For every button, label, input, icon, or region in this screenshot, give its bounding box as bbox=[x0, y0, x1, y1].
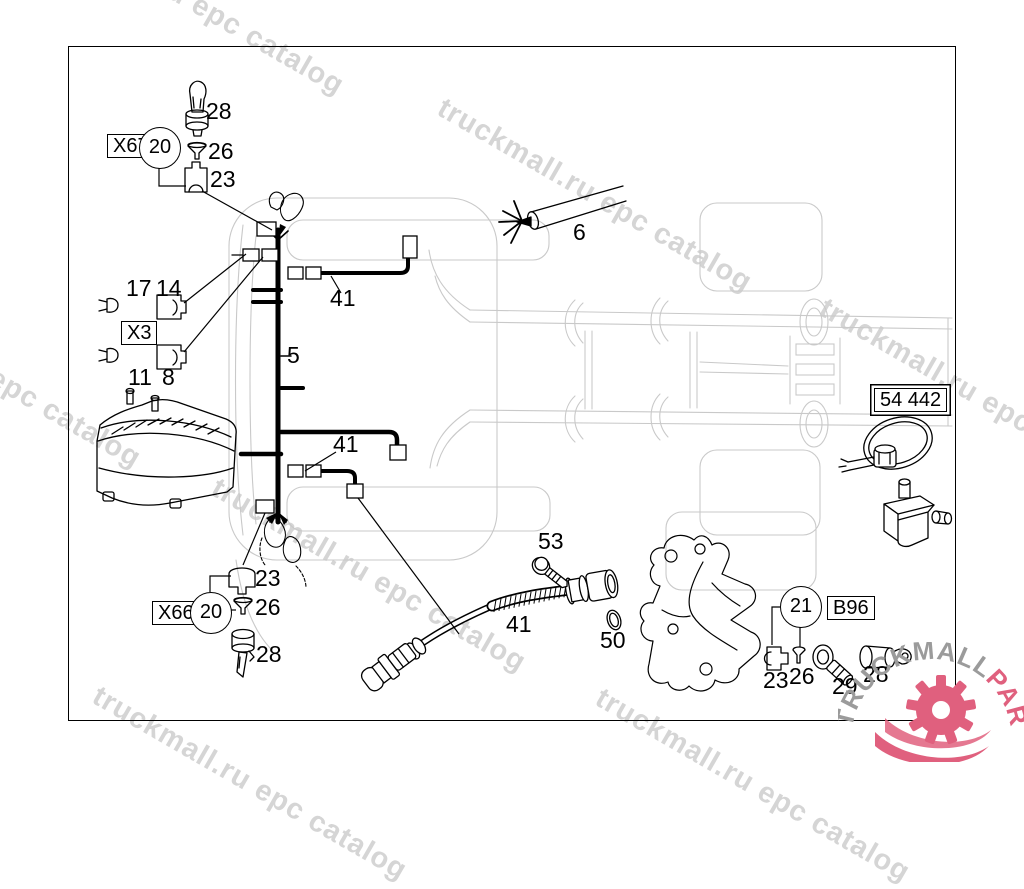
callout-23-x66[interactable]: 23 bbox=[255, 567, 281, 590]
callout-5-harness[interactable]: 5 bbox=[287, 344, 300, 367]
callout-28-x66[interactable]: 28 bbox=[256, 643, 282, 666]
label-box-b96[interactable]: B96 bbox=[827, 596, 875, 620]
label-circle-20-top[interactable]: 20 bbox=[139, 127, 181, 169]
callout-17[interactable]: 17 bbox=[126, 277, 152, 300]
callout-41-cable[interactable]: 41 bbox=[506, 613, 532, 636]
clamp-drawing bbox=[884, 479, 952, 546]
callout-26-x66[interactable]: 26 bbox=[255, 596, 281, 619]
pin-26-b96-icon bbox=[793, 647, 805, 663]
bulb-icon bbox=[186, 81, 208, 136]
transmission-drawing bbox=[640, 535, 760, 691]
callout-23-b96[interactable]: 23 bbox=[763, 669, 789, 692]
sensor-head-drawing bbox=[564, 569, 620, 606]
label-box-x3[interactable]: X3 bbox=[121, 321, 157, 345]
label-circle-20-bottom[interactable]: 20 bbox=[190, 592, 232, 634]
wiring-harness-drawing bbox=[232, 222, 417, 525]
speed-sensor-cable-drawing bbox=[358, 569, 620, 695]
callout-26-nut-top[interactable]: 26 bbox=[208, 140, 234, 163]
catalog-diagram-page: truckmall.ru epc catalog truckmall.ru ep… bbox=[0, 0, 1024, 750]
callout-26-b96[interactable]: 26 bbox=[789, 665, 815, 688]
label-circle-21[interactable]: 21 bbox=[780, 586, 822, 628]
callout-11[interactable]: 11 bbox=[128, 366, 152, 389]
conduit-drawing bbox=[499, 186, 626, 243]
logo-gear-icon bbox=[906, 675, 977, 745]
callout-41-upper[interactable]: 41 bbox=[330, 287, 356, 310]
bulb-28-x66-icon bbox=[232, 630, 254, 678]
nut-icon bbox=[188, 143, 206, 160]
truckmall-parts-logo: TRUCKMALLPARTS bbox=[838, 642, 1024, 762]
callout-14[interactable]: 14 bbox=[156, 277, 182, 300]
bolt-icon bbox=[529, 554, 572, 593]
callout-28-bulb-top[interactable]: 28 bbox=[206, 100, 232, 123]
pin-11-icon bbox=[99, 348, 118, 362]
callout-6-conduit[interactable]: 6 bbox=[573, 221, 586, 244]
cable-tie-drawing bbox=[839, 408, 939, 477]
nut-26-x66-icon bbox=[234, 598, 252, 615]
callout-8[interactable]: 8 bbox=[162, 366, 175, 389]
callout-23-conn-top[interactable]: 23 bbox=[210, 168, 236, 191]
connector-23-icon bbox=[185, 162, 207, 192]
callout-50-oring[interactable]: 50 bbox=[600, 629, 626, 652]
pin-17-icon bbox=[99, 298, 118, 312]
callout-41-lower[interactable]: 41 bbox=[333, 433, 359, 456]
diagram-artwork bbox=[0, 0, 1024, 750]
label-box-54442[interactable]: 54 442 bbox=[874, 388, 947, 412]
headlamp-drawing bbox=[97, 389, 236, 509]
callout-53-bolt[interactable]: 53 bbox=[538, 530, 564, 553]
